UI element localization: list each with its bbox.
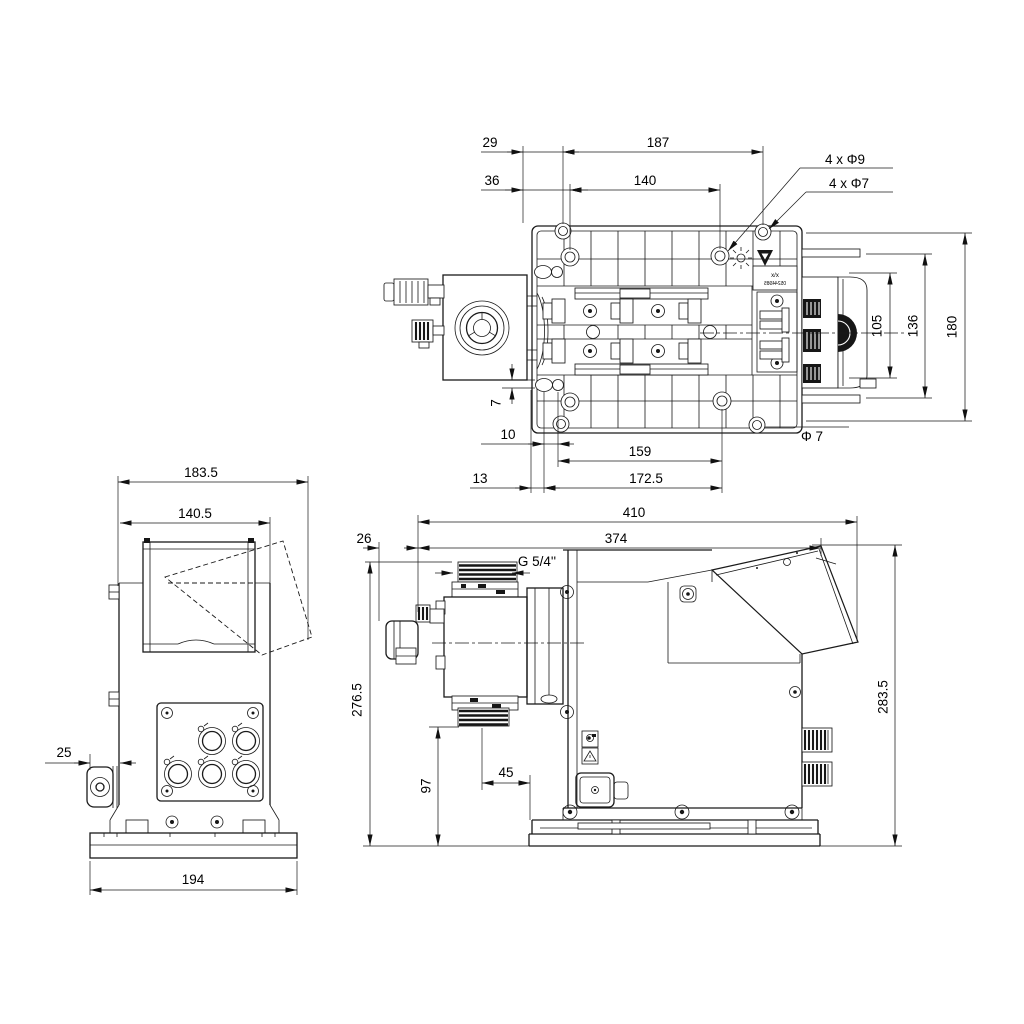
side-view: 410 374 26 G 5/4'' 276.5 97 45 283.5 <box>350 505 903 846</box>
dim-97: 97 <box>419 778 434 793</box>
side-knobs <box>802 728 832 786</box>
dim-10: 10 <box>500 427 515 442</box>
dim-194: 194 <box>182 872 205 887</box>
label-phi7: Φ 7 <box>801 429 823 444</box>
back-view: 183.5 140.5 25 194 <box>45 465 312 895</box>
dim-140: 140 <box>634 173 657 188</box>
dim-183-5: 183.5 <box>184 465 218 480</box>
pump-head-top <box>384 275 537 380</box>
dim-45: 45 <box>498 765 513 780</box>
drain-detail <box>576 773 628 807</box>
connector-sockets <box>165 728 260 788</box>
dim-140-5: 140.5 <box>178 506 212 521</box>
label-thread: G 5/4'' <box>518 554 556 569</box>
mounting-plate: x/x 05244985 <box>532 223 802 433</box>
cable-gland-top <box>384 279 444 305</box>
pump-body-back <box>109 583 279 833</box>
connector-panel <box>157 703 263 828</box>
dim-187: 187 <box>647 135 670 150</box>
dim-276-5: 276.5 <box>350 683 365 717</box>
dim-374: 374 <box>605 531 628 546</box>
dim-172-5: 172.5 <box>629 471 663 486</box>
dim-136: 136 <box>906 315 921 338</box>
technical-drawing: x/x 05244985 <box>0 0 1024 1024</box>
control-panel-side <box>712 546 858 654</box>
dosing-head-side <box>386 562 585 726</box>
clamp-row-top <box>543 299 701 323</box>
cable-gland-side <box>386 605 444 664</box>
dim-29: 29 <box>482 135 497 150</box>
dim-180: 180 <box>945 316 960 339</box>
warning-labels <box>582 731 598 764</box>
label-holes-d9: 4 x Φ9 <box>825 152 865 167</box>
plate-moulded-number: 05244985 <box>764 281 786 287</box>
dim-26: 26 <box>356 531 371 546</box>
brand-triangle-icon <box>757 250 773 266</box>
back-view-dimensions: 183.5 140.5 25 194 <box>45 465 308 895</box>
dim-25: 25 <box>56 745 71 760</box>
dim-13: 13 <box>472 471 487 486</box>
plate-moulded-label: x/x <box>771 273 779 279</box>
plate-label-section: x/x 05244985 <box>752 266 797 375</box>
dim-410: 410 <box>623 505 646 520</box>
dim-7: 7 <box>489 399 504 407</box>
dim-283-5: 283.5 <box>876 680 891 714</box>
top-view: x/x 05244985 <box>384 135 972 493</box>
mounting-holes <box>535 223 772 433</box>
recycle-icon <box>730 247 752 269</box>
open-lid-outline <box>165 541 312 655</box>
clamp-row-bottom <box>543 339 701 363</box>
dim-36: 36 <box>484 173 499 188</box>
dim-105: 105 <box>870 315 885 338</box>
base-plate-back <box>90 833 297 858</box>
dim-159: 159 <box>629 444 652 459</box>
control-panel-back <box>143 538 312 655</box>
wall-bracket <box>87 766 117 808</box>
base-plate-side <box>529 820 820 846</box>
bleed-valve-top <box>412 320 444 348</box>
label-holes-d7: 4 x Φ7 <box>829 176 869 191</box>
